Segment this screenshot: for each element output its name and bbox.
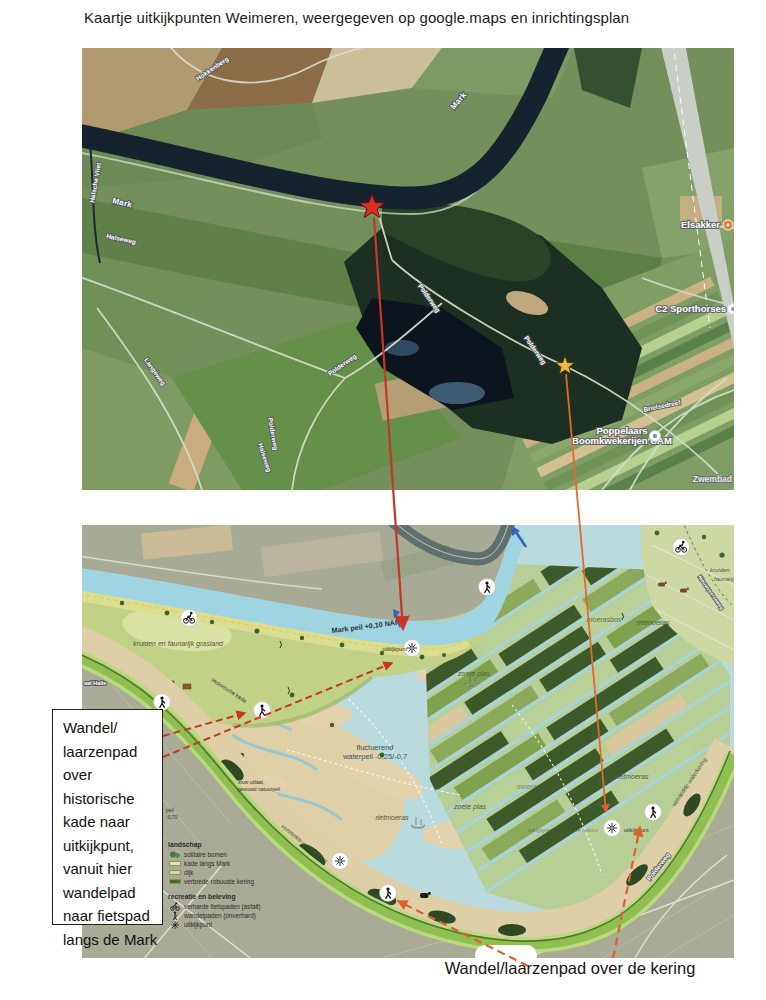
annotation-note-box: Wandel/ laarzenpad over historische kade… xyxy=(52,709,163,925)
uitkijkpunt-icon-3 xyxy=(332,853,349,870)
satellite-map-image: Mark Mark Halsche Vliet Halseweg Langewe… xyxy=(82,48,734,490)
label-halle: aal Halle xyxy=(84,680,106,686)
legend-header-landschap: landschap xyxy=(168,841,296,848)
note-line: naar fietspad xyxy=(63,904,160,928)
legend-item-label: kade langs Mark xyxy=(184,860,230,867)
legend-item: verharde fietspaden (asfalt) xyxy=(168,902,296,911)
label-uitkijkpunt-1: uitkijkpunt xyxy=(383,646,408,652)
wandelpad-icon-4 xyxy=(645,804,662,821)
bottom-notch xyxy=(475,945,537,958)
note-line: uitkijkpunt, xyxy=(63,834,160,858)
satellite-map-canvas: Mark Mark Halsche Vliet Halseweg Langewe… xyxy=(82,48,734,490)
wandelpad-icon-3 xyxy=(479,579,496,596)
kade-color-chip xyxy=(168,861,181,867)
page: Kaartje uitkijkpunten Weimeren, weergege… xyxy=(0,0,766,1000)
note-line: wandelpad xyxy=(63,881,160,905)
place-label-c2-sporthorses: C2 Sporthorses xyxy=(655,303,726,314)
elsakker-poi-icon xyxy=(723,220,733,230)
label-bestaande-natuur: aangepast bestaande natuur xyxy=(528,827,599,833)
note-line: laarzenpad xyxy=(63,740,160,764)
label-rietmoeras-1: rietmoeras xyxy=(375,814,409,821)
plan-legend: landschap solitaire bomen kade langs Mar… xyxy=(168,841,296,929)
note-line: Wandel/ xyxy=(63,716,160,740)
legend-item-label: solitaire bomen xyxy=(184,851,227,858)
legend-item-label: verbrede robuuste kering xyxy=(184,878,254,885)
legend-item: solitaire bomen xyxy=(168,850,296,859)
legend-item: kade langs Mark xyxy=(168,859,296,868)
legend-item: dijk xyxy=(168,868,296,877)
legend-item: uitkijkpunt xyxy=(168,920,296,929)
annotation-caption: Wandel/laarzenpad over de kering xyxy=(380,959,760,978)
place-label-zwembad: Zwembad xyxy=(693,474,732,484)
fietspad-icon-1 xyxy=(181,610,198,627)
label-grasland: kruiden en faunarijk grasland xyxy=(133,640,224,648)
legend-header-recreatie: recreatie en beleving xyxy=(168,893,296,900)
label-moerasbos-2: moerasbos xyxy=(517,783,552,790)
bridge-2 xyxy=(183,684,191,689)
c2-poi-icon xyxy=(728,304,735,315)
wandelpad-icon-2 xyxy=(254,702,271,719)
label-peil-partial-2: -0,70 xyxy=(166,814,178,820)
tree-icon xyxy=(168,850,181,859)
label-kruiden-edge-1: kruiden xyxy=(710,567,730,573)
legend-item: verbrede robuuste kering xyxy=(168,877,296,886)
dijk-color-chip xyxy=(168,870,181,876)
label-fluctuerend-1: fluctuerend xyxy=(356,743,393,752)
legend-item-label: uitkijkpunt xyxy=(184,921,212,928)
kering-color-chip xyxy=(168,879,181,885)
uitkijkpunt-icon-2 xyxy=(604,820,621,837)
label-kruiden-edge-2: faunarijk xyxy=(714,576,734,582)
label-fluctuerend-2: waterpeil -0,25/-0,7 xyxy=(342,752,407,761)
legend-item-label: wandelpaden (onverhard) xyxy=(184,912,256,919)
label-zoete-plas-1: zoete plas xyxy=(457,670,490,678)
label-uitkijkpunt-2: uitkijkpunt xyxy=(624,827,649,833)
label-zoete-plas-2: zoete plas xyxy=(453,803,486,811)
note-line: historische xyxy=(63,787,160,811)
uitkijkpunt-icon xyxy=(168,920,181,930)
legend-item-label: verharde fietspaden (asfalt) xyxy=(184,903,261,910)
wandelpad-icon-1 xyxy=(154,694,171,711)
page-title: Kaartje uitkijkpunten Weimeren, weergege… xyxy=(84,9,629,26)
label-stuw-2: gestuwd natuurpeil xyxy=(238,786,280,792)
note-line: kade naar xyxy=(63,810,160,834)
label-moerasbos-1: moerasbos xyxy=(587,616,622,623)
label-rietmoeras-2: rietmoeras xyxy=(615,773,649,780)
label-rietmoeras-3: rietmoeras xyxy=(636,619,670,626)
note-line: over xyxy=(63,763,160,787)
label-peil-partial-1: peil xyxy=(166,807,174,813)
note-line: langs de Mark xyxy=(63,928,160,952)
legend-item-label: dijk xyxy=(184,869,193,876)
legend-item: wandelpaden (onverhard) xyxy=(168,911,296,920)
note-line: vanuit hier xyxy=(63,857,160,881)
place-label-elsakker: Elsakker xyxy=(681,219,720,230)
fietspad-icon-2 xyxy=(673,539,690,556)
poppelaars-poi-icon xyxy=(650,431,661,442)
wandelpad-icon-5 xyxy=(380,885,397,902)
label-stuw-1: stuw uitlaat, xyxy=(238,779,264,785)
